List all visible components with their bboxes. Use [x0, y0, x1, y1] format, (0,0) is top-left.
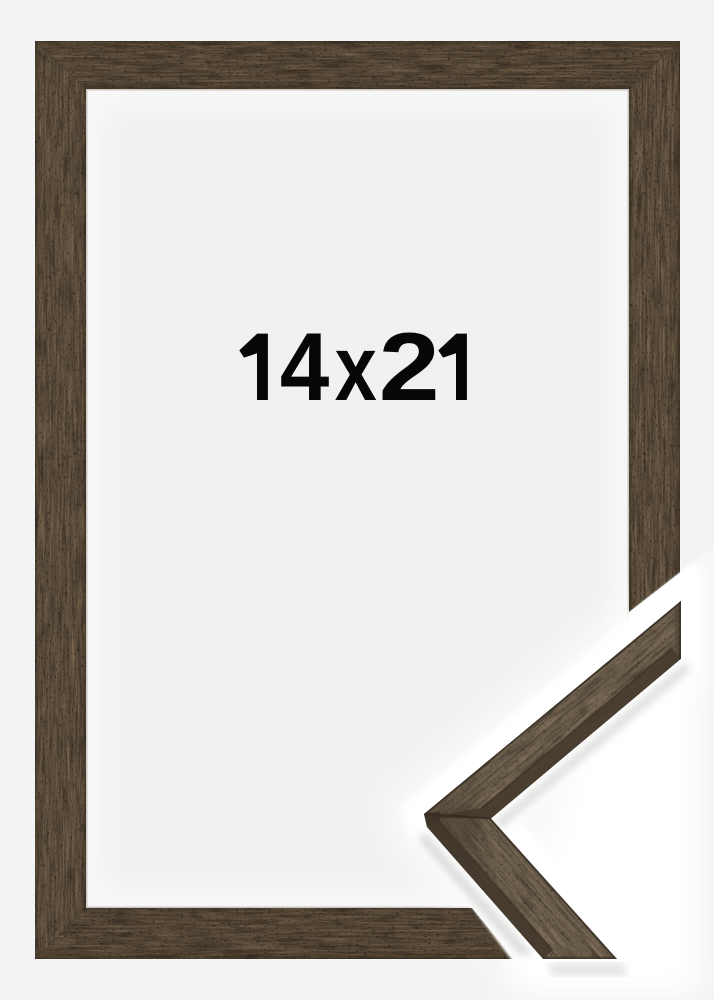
svg-text:x: x — [335, 315, 377, 419]
svg-text:2: 2 — [379, 313, 440, 421]
svg-text:4: 4 — [280, 313, 330, 421]
